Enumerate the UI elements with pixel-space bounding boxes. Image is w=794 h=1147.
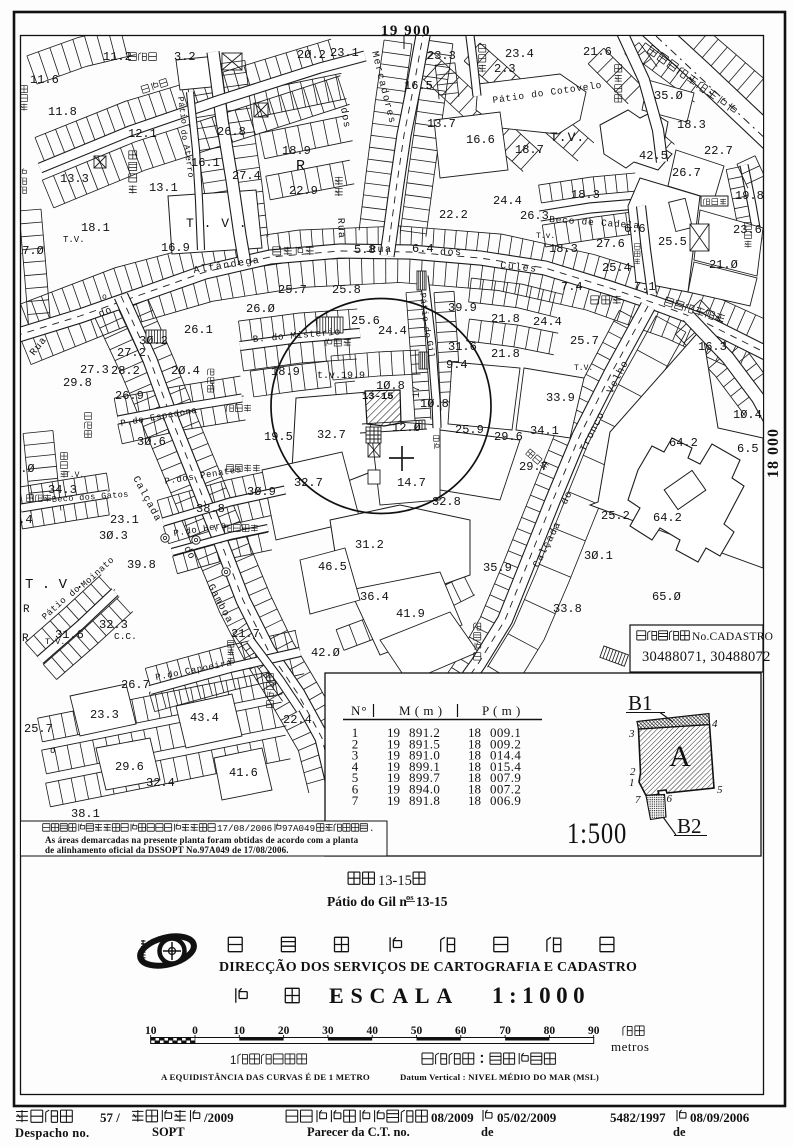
svg-text:2Ø.4: 2Ø.4 xyxy=(171,364,200,378)
svg-text:Gil: Gil xyxy=(424,340,436,359)
svg-text:de: de xyxy=(481,1125,494,1139)
svg-text:25.8: 25.8 xyxy=(332,283,361,297)
svg-text:7.1: 7.1 xyxy=(634,280,656,294)
svg-text:24.4: 24.4 xyxy=(493,194,522,208)
svg-text:42.Ø: 42.Ø xyxy=(311,646,340,660)
svg-text:do: do xyxy=(178,129,189,141)
svg-text:Rua: Rua xyxy=(370,245,393,256)
svg-text:18.1: 18.1 xyxy=(81,221,110,235)
svg-text:12.Ø: 12.Ø xyxy=(392,421,421,435)
svg-text:N°: N° xyxy=(351,703,368,718)
svg-text:33.9: 33.9 xyxy=(546,391,575,405)
svg-text:26.9: 26.9 xyxy=(115,389,144,403)
svg-text:18.3: 18.3 xyxy=(677,118,706,132)
svg-text:16.9: 16.9 xyxy=(161,241,190,255)
svg-text:T.V.: T.V. xyxy=(45,637,65,647)
svg-text:29.7: 29.7 xyxy=(519,460,548,474)
svg-text:9.4: 9.4 xyxy=(446,358,468,372)
svg-text:27.3: 27.3 xyxy=(80,363,109,377)
svg-text:23.1: 23.1 xyxy=(110,513,139,527)
svg-text:38.8: 38.8 xyxy=(196,502,225,516)
svg-text:18.7: 18.7 xyxy=(515,143,544,157)
svg-text:1Ø.8: 1Ø.8 xyxy=(376,379,405,393)
svg-text:25.5: 25.5 xyxy=(658,235,687,249)
svg-text:30488071, 30488072: 30488071, 30488072 xyxy=(642,649,771,665)
svg-text:97A049: 97A049 xyxy=(282,823,315,834)
svg-text:26.1: 26.1 xyxy=(184,323,213,337)
svg-text:3: 3 xyxy=(628,728,635,740)
svg-text:39.9: 39.9 xyxy=(448,301,477,315)
svg-text:6.4: 6.4 xyxy=(412,242,434,256)
svg-text:26.Ø: 26.Ø xyxy=(246,302,275,316)
svg-text:39.8: 39.8 xyxy=(127,558,156,572)
svg-text:C.C.: C.C. xyxy=(114,631,137,642)
svg-text:21.Ø: 21.Ø xyxy=(709,258,738,272)
svg-text:18.9: 18.9 xyxy=(282,144,311,158)
svg-text:57 /: 57 / xyxy=(100,1110,120,1125)
svg-text:25.7: 25.7 xyxy=(278,283,307,297)
svg-text:65.Ø: 65.Ø xyxy=(652,590,681,604)
svg-text:22.9: 22.9 xyxy=(289,184,318,198)
svg-text:27.2: 27.2 xyxy=(117,346,146,360)
svg-text:ESCALA: ESCALA xyxy=(329,983,459,1008)
svg-text:4: 4 xyxy=(712,718,718,730)
svg-text:do: do xyxy=(421,326,432,339)
svg-text:08/09/2006: 08/09/2006 xyxy=(690,1110,750,1125)
svg-text:32.3: 32.3 xyxy=(99,618,128,632)
svg-text:18: 18 xyxy=(468,793,481,808)
svg-text:16.3: 16.3 xyxy=(698,340,727,354)
svg-text:32.7: 32.7 xyxy=(317,428,346,442)
svg-text:17: 17 xyxy=(412,386,423,398)
svg-text:26.8: 26.8 xyxy=(217,125,246,139)
svg-text:6.5: 6.5 xyxy=(737,442,759,456)
svg-text:23.3: 23.3 xyxy=(427,49,456,63)
svg-text:25.6: 25.6 xyxy=(351,314,380,328)
svg-text:11.8: 11.8 xyxy=(48,105,77,119)
svg-text:16.5: 16.5 xyxy=(404,79,433,93)
svg-text:21.8: 21.8 xyxy=(491,312,520,326)
svg-text:21.7: 21.7 xyxy=(231,627,260,641)
svg-text:35.Ø: 35.Ø xyxy=(654,89,683,103)
svg-text:31.6: 31.6 xyxy=(448,340,477,354)
svg-text:64.2: 64.2 xyxy=(669,436,698,450)
svg-text:B1: B1 xyxy=(628,691,653,715)
svg-text:17/08/2006: 17/08/2006 xyxy=(217,823,272,834)
svg-text:M ( m ): M ( m ) xyxy=(399,703,443,718)
svg-text:1: 1 xyxy=(230,1055,236,1067)
svg-text:05/02/2009: 05/02/2009 xyxy=(497,1110,557,1125)
svg-text:.: . xyxy=(369,823,375,834)
svg-text:25.2: 25.2 xyxy=(601,509,630,523)
svg-text:21.8: 21.8 xyxy=(491,347,520,361)
svg-text:34.1: 34.1 xyxy=(530,424,559,438)
svg-text:3Ø.9: 3Ø.9 xyxy=(247,485,276,499)
svg-text:B2: B2 xyxy=(677,814,702,838)
svg-text:P ( m ): P ( m ) xyxy=(482,703,521,718)
svg-text:1: 1 xyxy=(629,777,635,789)
svg-text:13.1: 13.1 xyxy=(149,181,178,195)
svg-text:64.2: 64.2 xyxy=(653,511,682,525)
svg-text:1Ø.8: 1Ø.8 xyxy=(420,397,449,411)
svg-text:5482/1997: 5482/1997 xyxy=(610,1110,666,1125)
svg-text:24.4: 24.4 xyxy=(378,324,407,338)
svg-text:26.7: 26.7 xyxy=(121,678,150,692)
svg-text:43.4: 43.4 xyxy=(190,711,219,725)
svg-text:Despacho no.: Despacho no. xyxy=(15,1126,89,1140)
svg-text:13-15: 13-15 xyxy=(378,873,412,889)
svg-text:3Ø.6: 3Ø.6 xyxy=(137,435,166,449)
svg-text:T.v.: T.v. xyxy=(536,232,555,241)
svg-text:25.4: 25.4 xyxy=(602,261,631,275)
svg-text:Pátio do Gil n: Pátio do Gil n xyxy=(327,894,407,909)
svg-text:42.5: 42.5 xyxy=(639,149,668,163)
svg-text:32.4: 32.4 xyxy=(146,776,175,790)
svg-text:19.8: 19.8 xyxy=(735,189,764,203)
svg-text:891.8: 891.8 xyxy=(409,793,440,808)
svg-text:25.7: 25.7 xyxy=(24,722,53,736)
svg-text:os: os xyxy=(406,892,414,902)
svg-text:18 000: 18 000 xyxy=(765,428,782,478)
svg-text:/2009: /2009 xyxy=(203,1110,234,1125)
svg-text:27.6: 27.6 xyxy=(596,237,625,251)
svg-text:A EQUIDISTÂNCIA DAS CURVAS É D: A EQUIDISTÂNCIA DAS CURVAS É DE 1 METRO xyxy=(161,1072,370,1082)
svg-text:13.7: 13.7 xyxy=(427,117,456,131)
svg-text:26.3: 26.3 xyxy=(520,209,549,223)
svg-text:18.9: 18.9 xyxy=(271,365,300,379)
svg-text:25.7: 25.7 xyxy=(570,334,599,348)
svg-text:23.1: 23.1 xyxy=(330,46,359,60)
svg-text:o: o xyxy=(50,746,55,756)
svg-text:23.4: 23.4 xyxy=(505,47,534,61)
svg-text:22.4: 22.4 xyxy=(283,713,312,727)
svg-text:12.1: 12.1 xyxy=(128,127,157,141)
svg-text:2: 2 xyxy=(630,766,636,778)
svg-text:1:500: 1:500 xyxy=(567,817,627,850)
svg-text:dos: dos xyxy=(440,247,463,259)
svg-text:1:1000: 1:1000 xyxy=(492,983,590,1008)
svg-text:32.8: 32.8 xyxy=(432,495,461,509)
svg-text:23.3: 23.3 xyxy=(90,708,119,722)
svg-text:R: R xyxy=(296,158,305,175)
svg-text:2Ø.2: 2Ø.2 xyxy=(297,48,326,62)
svg-text:11.2: 11.2 xyxy=(103,50,132,64)
svg-text:16.6: 16.6 xyxy=(466,133,495,147)
svg-text:36.4: 36.4 xyxy=(360,590,389,604)
svg-text:11.6: 11.6 xyxy=(30,73,59,87)
svg-text:22.2: 22.2 xyxy=(439,208,468,222)
svg-text:T.V.: T.V. xyxy=(63,235,85,245)
svg-text:29.6: 29.6 xyxy=(494,430,523,444)
svg-text:29.8: 29.8 xyxy=(63,376,92,390)
svg-text:7: 7 xyxy=(352,793,359,808)
svg-text:3.2: 3.2 xyxy=(174,50,196,64)
svg-text:metros: metros xyxy=(611,1039,649,1054)
svg-text:7: 7 xyxy=(635,794,641,806)
svg-text:Rua: Rua xyxy=(334,218,346,240)
svg-text:As áreas demarcadas na present: As áreas demarcadas na presente planta f… xyxy=(45,835,359,845)
svg-text:16.1: 16.1 xyxy=(191,156,220,170)
svg-text:R: R xyxy=(23,604,30,616)
svg-text:6: 6 xyxy=(667,793,673,805)
svg-text:13.3: 13.3 xyxy=(60,172,89,186)
svg-text:Datum Vertical : NIVEL MÉDIO D: Datum Vertical : NIVEL MÉDIO DO MAR (MSL… xyxy=(400,1072,599,1082)
svg-text:5: 5 xyxy=(717,784,723,796)
svg-text:27.4: 27.4 xyxy=(232,169,261,183)
svg-text:Parecer da C.T. no.: Parecer da C.T. no. xyxy=(307,1125,410,1139)
svg-text:26.7: 26.7 xyxy=(672,166,701,180)
svg-text:22.7: 22.7 xyxy=(704,144,733,158)
svg-text:41.6: 41.6 xyxy=(229,766,258,780)
svg-text:25.9: 25.9 xyxy=(455,423,484,437)
svg-text:21.6: 21.6 xyxy=(583,45,612,59)
svg-text:18.3: 18.3 xyxy=(549,242,578,256)
svg-text:T.V.: T.V. xyxy=(574,364,593,373)
svg-text:1Ø.4: 1Ø.4 xyxy=(733,408,762,422)
svg-text:de alinhamento oficial da DSSO: de alinhamento oficial da DSSOPT No.97A0… xyxy=(45,845,289,855)
svg-text:28.2: 28.2 xyxy=(111,364,140,378)
svg-text:T . V .: T . V . xyxy=(186,216,248,231)
svg-text:19.5: 19.5 xyxy=(264,430,293,444)
svg-text:T.V.: T.V. xyxy=(550,130,585,145)
svg-text:19: 19 xyxy=(387,793,400,808)
svg-text:33.8: 33.8 xyxy=(553,602,582,616)
svg-text:46.5: 46.5 xyxy=(318,560,347,574)
svg-text:38.1: 38.1 xyxy=(71,807,100,821)
svg-text:31.2: 31.2 xyxy=(355,538,384,552)
svg-text:de: de xyxy=(673,1125,686,1139)
svg-text:2.3: 2.3 xyxy=(494,62,516,76)
svg-text:3Ø.3: 3Ø.3 xyxy=(99,529,128,543)
svg-text:t.v.19.9: t.v.19.9 xyxy=(317,371,365,382)
svg-text:o: o xyxy=(102,293,107,302)
svg-text:24.4: 24.4 xyxy=(533,315,562,329)
svg-text:SOPT: SOPT xyxy=(152,1125,185,1139)
svg-text:41.9: 41.9 xyxy=(396,607,425,621)
svg-text:35.9: 35.9 xyxy=(483,561,512,575)
svg-text:A: A xyxy=(669,740,691,773)
svg-text:No.CADASTRO: No.CADASTRO xyxy=(692,631,773,643)
svg-text:18.3: 18.3 xyxy=(571,188,600,202)
svg-text:R: R xyxy=(22,633,29,645)
svg-text:006.9: 006.9 xyxy=(490,793,521,808)
svg-text:T.V.: T.V. xyxy=(65,471,84,480)
svg-text:32.7: 32.7 xyxy=(294,476,323,490)
svg-text:3Ø.1: 3Ø.1 xyxy=(584,549,613,563)
svg-text:13-15: 13-15 xyxy=(416,894,448,909)
svg-text:7.4: 7.4 xyxy=(561,280,583,294)
svg-text:29.6: 29.6 xyxy=(115,760,144,774)
svg-text:14.7: 14.7 xyxy=(397,476,426,490)
svg-text:DIRECÇÃO DOS SERVIÇOS DE CARTO: DIRECÇÃO DOS SERVIÇOS DE CARTOGRAFIA E C… xyxy=(219,957,637,975)
svg-text:08/2009: 08/2009 xyxy=(431,1110,474,1125)
